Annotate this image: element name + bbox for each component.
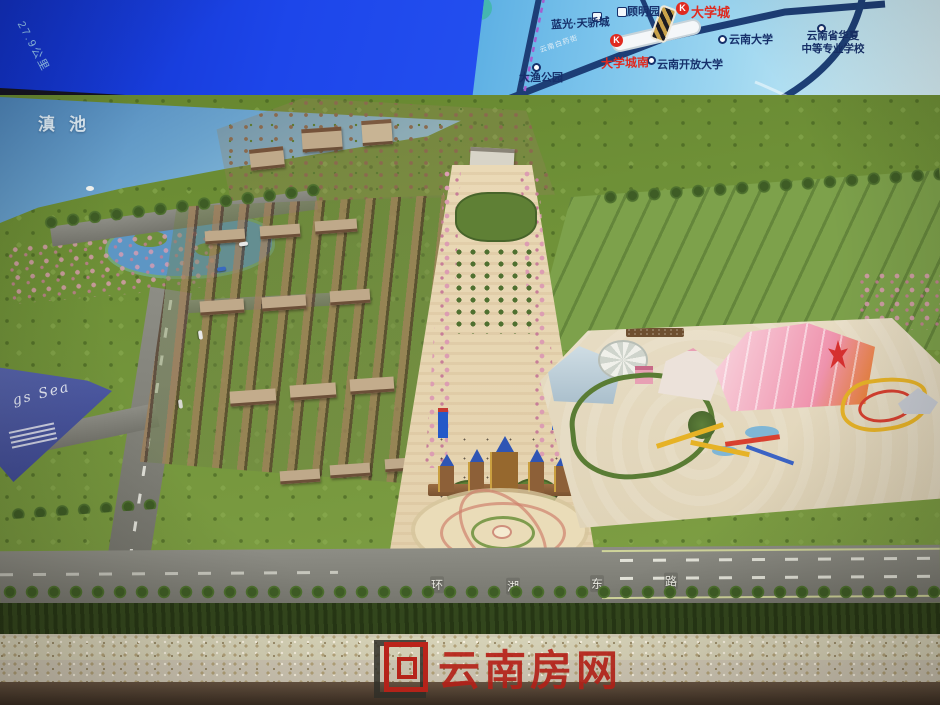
billboard-script-text: gs Sea: [11, 379, 72, 409]
residential-building: [330, 463, 371, 479]
exhibition-photo: 27.9公里 K K 蓝光·天骄城 顾明园 大学城 云南大学 云南省华夏 中等专…: [0, 0, 940, 705]
watermark-logo-inner-square: [397, 657, 417, 679]
model-residential-blocks: [140, 195, 445, 485]
gate-main-tower: [490, 452, 518, 492]
poi-dot-icon: [718, 35, 727, 44]
billboard-fine-print: [8, 419, 58, 451]
lake-name-label: 滇池: [38, 110, 100, 135]
lane-edge-line: [601, 548, 939, 552]
model-hedge-border: [0, 603, 940, 637]
map-label-university-town: 大学城: [691, 2, 730, 21]
village-building: [301, 127, 343, 153]
residential-building: [290, 382, 337, 400]
lane-dashes: [620, 557, 940, 562]
map-label-huaxia-line1: 云南省华夏: [785, 30, 881, 43]
village-building: [249, 146, 285, 170]
map-label-open-university: 云南开放大学: [657, 56, 723, 72]
poi-marker-icon: [617, 7, 627, 17]
gate-tower: [528, 462, 544, 492]
map-label-university-town-south: 大学城南: [601, 53, 650, 72]
map-label-blueray: 蓝光·天骄城: [551, 13, 610, 32]
village-building: [361, 119, 393, 146]
map-label-huaxia-school: 云南省华夏 中等专业学校: [785, 30, 881, 56]
watermark-logo-icon: [384, 642, 428, 692]
parterre-garden: [455, 192, 537, 242]
coaster-track-blue: [746, 445, 794, 466]
gate-spire: [440, 454, 454, 466]
site-watermark: 云南房网: [372, 636, 642, 698]
gate-tower: [438, 466, 454, 492]
model-amusement-park: [540, 318, 940, 528]
metro-station-icon: K: [676, 2, 689, 15]
model-boat: [86, 186, 94, 191]
gate-spire: [496, 436, 514, 452]
map-label-yunnan-university: 云南大学: [729, 31, 773, 47]
residential-building: [330, 289, 371, 306]
gate-spire: [530, 449, 544, 462]
residential-building: [350, 376, 395, 394]
boulevard-banner: [438, 408, 448, 438]
residential-building: [280, 469, 321, 485]
lane-dashes: [0, 571, 338, 576]
gate-spire: [470, 449, 484, 462]
topiary-allee: [452, 246, 536, 334]
map-label-huaxia-line2: 中等专业学校: [785, 43, 881, 56]
residential-building: [230, 388, 277, 406]
map-label-guming: 顾明园: [627, 3, 660, 19]
watermark-text: 云南房网: [438, 637, 622, 698]
park-sign-banner: [626, 328, 684, 337]
map-label-dayu-park: 大渔公园: [519, 69, 563, 85]
shoreline-distance-label: 27.9公里: [14, 18, 54, 74]
residential-building: [260, 224, 301, 240]
metro-station-icon: K: [610, 34, 623, 47]
white-tent: [658, 348, 722, 401]
plaza-center: [492, 525, 512, 539]
